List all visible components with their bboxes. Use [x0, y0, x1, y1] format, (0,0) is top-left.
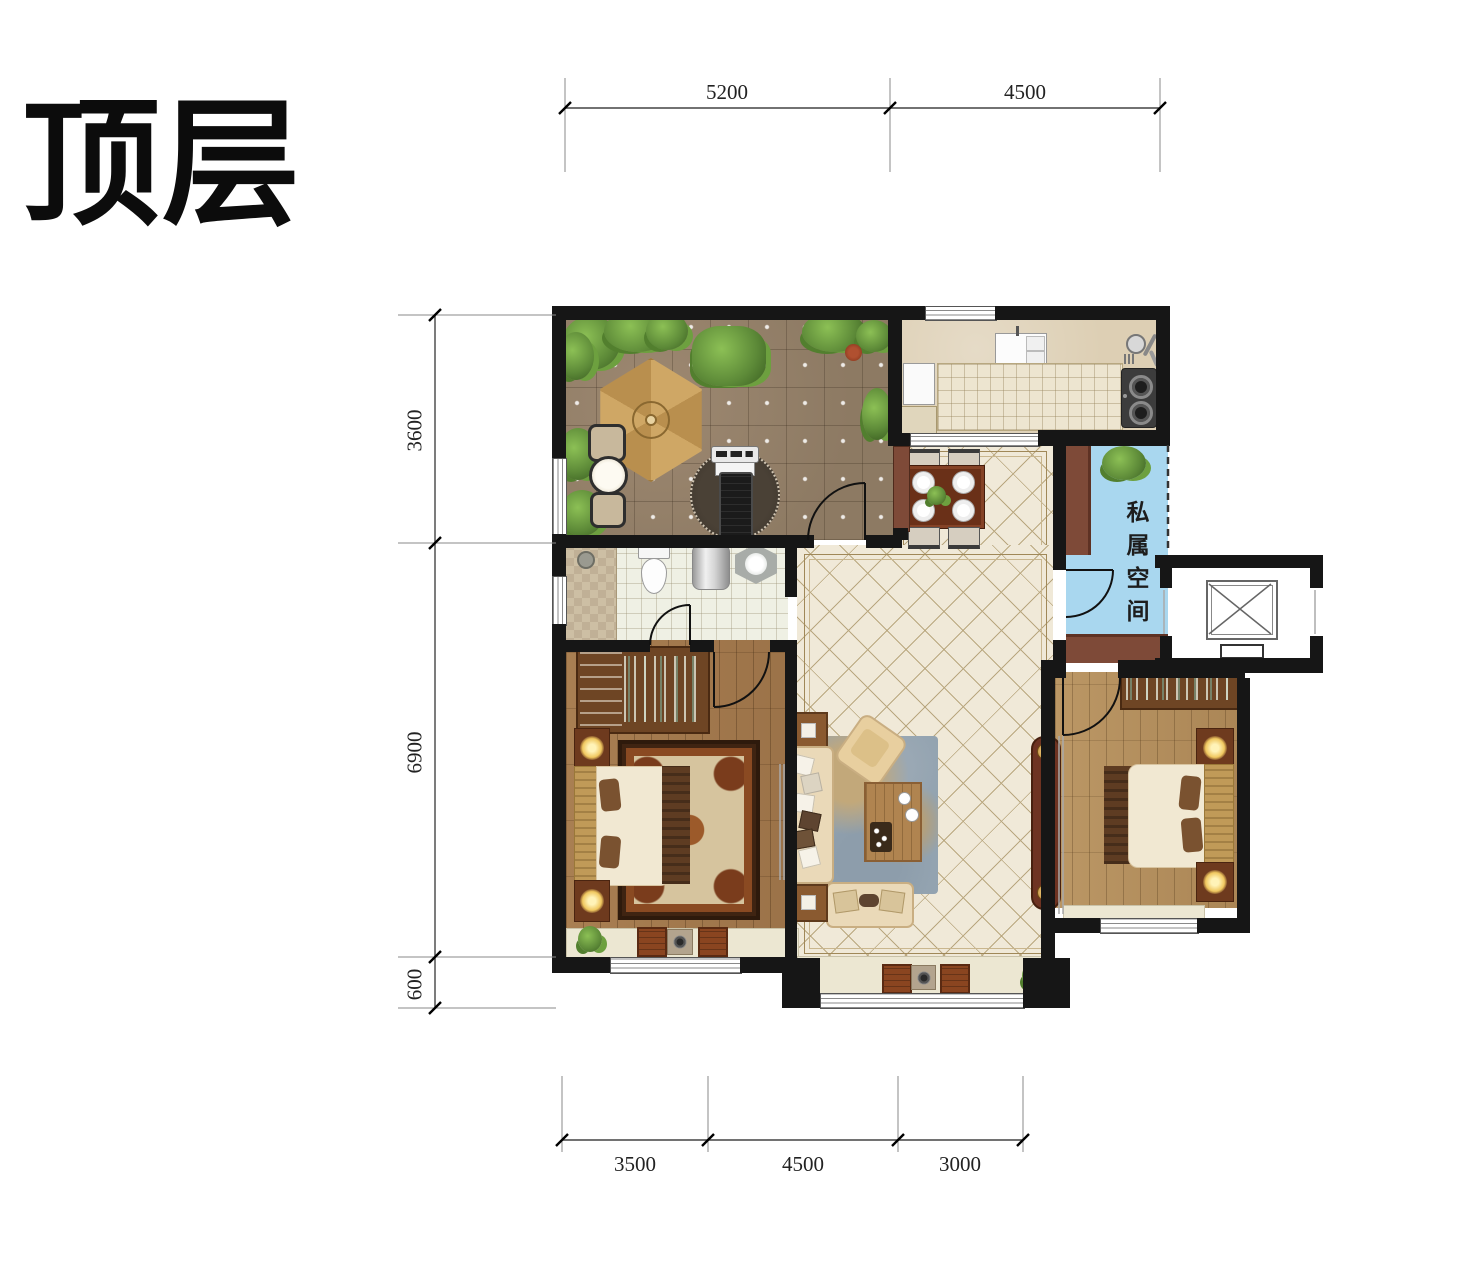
kitchen-counter [937, 363, 1123, 431]
dim-bottom-3500: 3500 [580, 1152, 690, 1177]
terrace-chair [590, 492, 626, 528]
treadmill [711, 446, 757, 546]
lamp [1203, 870, 1227, 894]
dining-chair [908, 527, 940, 549]
terrace-window [552, 458, 567, 536]
shower-head-icon [577, 551, 595, 569]
bed-headboard [1204, 764, 1234, 868]
lamp [580, 736, 604, 760]
dim-top-5200: 5200 [672, 80, 782, 105]
elevator-shaft [1206, 580, 1278, 640]
wardrobe [576, 646, 710, 734]
floor-clock [667, 929, 693, 955]
gas-stove [1121, 368, 1157, 428]
nightstand [574, 728, 610, 768]
refrigerator [903, 363, 935, 405]
dining-chair [948, 527, 980, 549]
dim-left-6900: 6900 [403, 698, 428, 808]
living-room-window [820, 993, 1025, 1009]
place-setting [952, 499, 975, 522]
terrace-plant [856, 320, 892, 352]
bedroom-plant [578, 926, 602, 952]
place-setting [952, 471, 975, 494]
nightstand [1196, 728, 1234, 768]
pillow [599, 835, 622, 869]
bathroom-window [552, 576, 567, 626]
flower-pot [845, 344, 862, 361]
kitchen-sink [995, 333, 1047, 367]
nightstand [574, 880, 610, 922]
stool [698, 927, 728, 957]
bed-runner [662, 766, 690, 884]
kitchen-utensils-icon [1126, 334, 1146, 354]
balcony-plant [1102, 446, 1146, 480]
table-centerpiece [927, 486, 946, 505]
stool [637, 927, 667, 957]
dining-screen [893, 446, 910, 532]
tray [870, 822, 892, 852]
water-heater [692, 544, 730, 590]
terrace-side-table [589, 456, 628, 495]
page-title: 顶层 [22, 52, 302, 252]
lamp [1203, 736, 1227, 760]
dim-bottom-3000: 3000 [905, 1152, 1015, 1177]
cup [905, 808, 919, 822]
floor-plan-canvas: 顶层 [0, 0, 1466, 1263]
elevator-door [1220, 644, 1264, 659]
floor-clock [911, 965, 936, 990]
cup [898, 792, 911, 805]
loveseat [826, 882, 914, 928]
dim-left-600: 600 [403, 930, 428, 1040]
spice-icons [1124, 354, 1136, 364]
pillow [598, 778, 621, 812]
left-bedroom-window [610, 957, 742, 974]
pillow [1181, 817, 1204, 853]
pillow [1178, 775, 1201, 811]
kitchen-pass-window [910, 433, 1040, 447]
balcony-deck [1066, 634, 1168, 663]
right-bedroom-window [1100, 918, 1199, 934]
dim-bottom-4500: 4500 [748, 1152, 858, 1177]
stool [940, 964, 970, 994]
faucet-icon [1016, 326, 1019, 336]
stool [882, 964, 912, 994]
coffee-table [864, 782, 922, 862]
lamp [580, 889, 604, 913]
terrace-bush [692, 326, 766, 386]
private-space-label: 私属空间 [1118, 500, 1152, 640]
nightstand [1196, 862, 1234, 902]
balcony-planter [1066, 443, 1091, 555]
dim-top-4500: 4500 [970, 80, 1080, 105]
kitchen-window [925, 306, 997, 321]
dim-left-3600: 3600 [403, 376, 428, 486]
